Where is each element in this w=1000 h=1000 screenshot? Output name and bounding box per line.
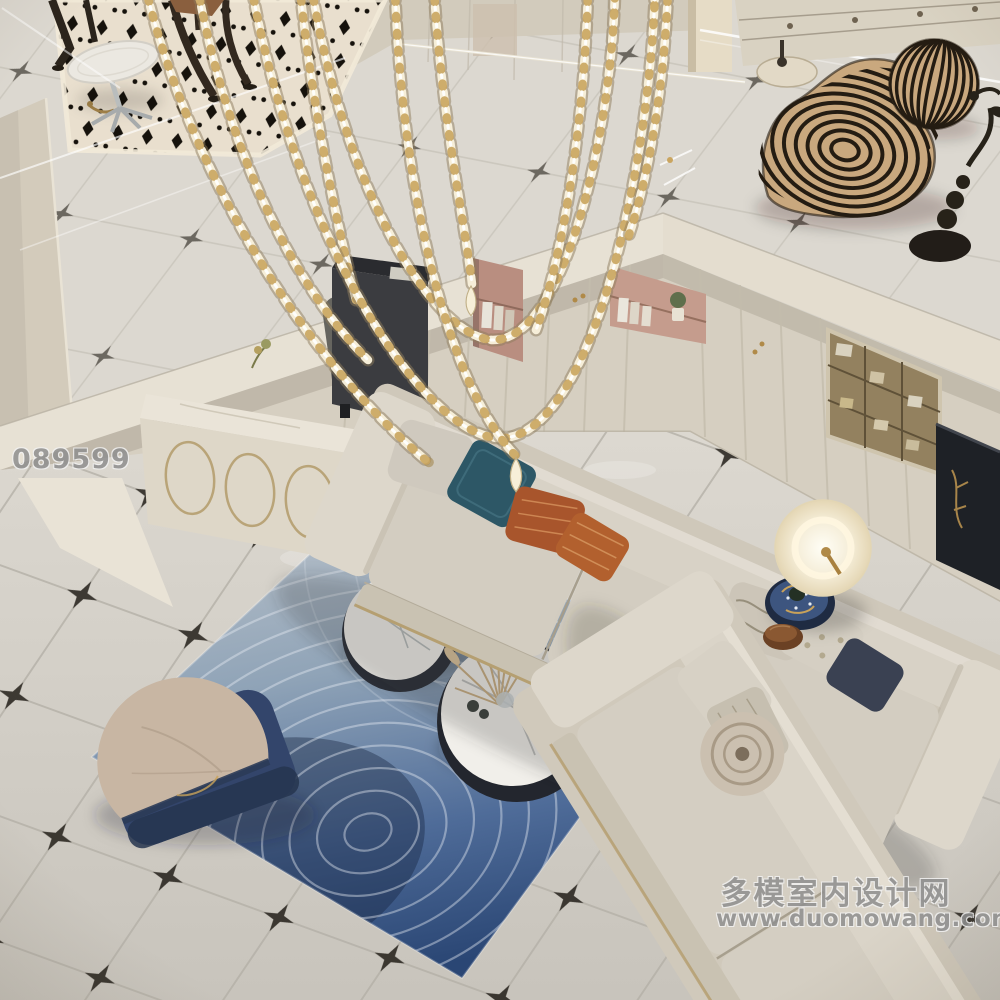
watermark-site-url: www.duomowang.com [716, 906, 956, 932]
interior-render: 089599 多模室内设计网 www.duomowang.com [0, 0, 1000, 1000]
watermark-id: 089599 [12, 444, 131, 475]
scene-canvas [0, 0, 1000, 1000]
vignette [0, 0, 1000, 1000]
